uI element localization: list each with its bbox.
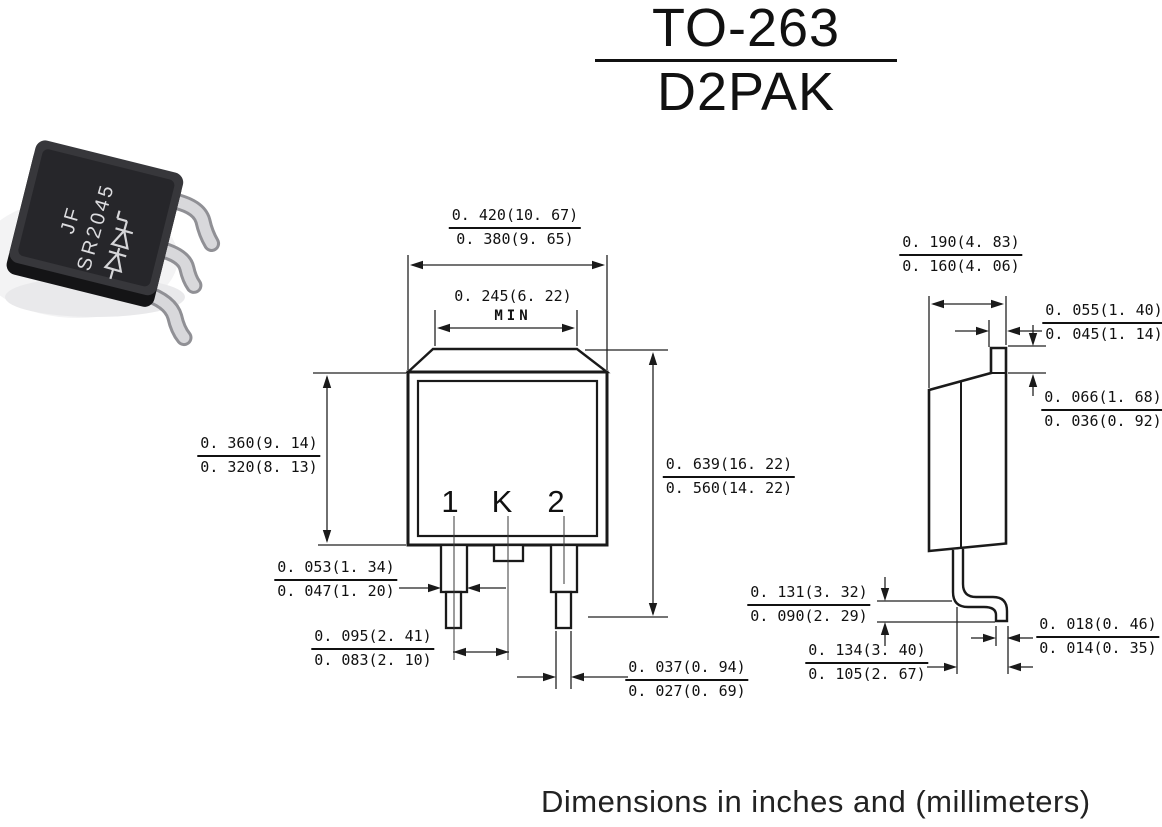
dim-max-value: 0. 639(16. 22) bbox=[663, 455, 795, 478]
dim-max-value: 0. 420(10. 67) bbox=[449, 206, 581, 229]
dim-front-body-height: 0. 360(9. 14) 0. 320(8. 13) bbox=[197, 434, 320, 477]
dim-min-value: 0. 036(0. 92) bbox=[1041, 411, 1162, 432]
dim-max-value: 0. 018(0. 46) bbox=[1036, 615, 1159, 638]
side-body-outline bbox=[929, 348, 1006, 551]
dim-max-value: 0. 095(2. 41) bbox=[311, 627, 434, 650]
dim-min-value: 0. 083(2. 10) bbox=[311, 650, 434, 671]
side-lead-bend bbox=[953, 549, 1007, 621]
package-name-secondary: D2PAK bbox=[595, 64, 897, 120]
front-lead2-lower bbox=[556, 592, 571, 628]
dim-max-value: 0. 037(0. 94) bbox=[625, 658, 748, 681]
dim-side-tab-height: 0. 066(1. 68) 0. 036(0. 92) bbox=[1041, 388, 1162, 431]
dim-min-value: 0. 027(0. 69) bbox=[625, 681, 748, 702]
dim-min-value: 0. 380(9. 65) bbox=[453, 229, 576, 250]
dim-max-value: 0. 360(9. 14) bbox=[197, 434, 320, 457]
dim-front-lead-width-upper: 0. 053(1. 34) 0. 047(1. 20) bbox=[274, 558, 397, 601]
units-caption: Dimensions in inches and (millimeters) bbox=[541, 784, 1091, 820]
dim-value: 0. 245(6. 22) bbox=[454, 287, 571, 307]
datasheet-package-drawing: JF SR2045 bbox=[0, 0, 1162, 827]
package-name-primary: TO-263 bbox=[595, 0, 897, 56]
package-photo: JF SR2045 bbox=[0, 138, 226, 338]
dim-max-value: 0. 066(1. 68) bbox=[1041, 388, 1162, 411]
dim-max-value: 0. 055(1. 40) bbox=[1042, 301, 1162, 324]
dim-min-value: 0. 320(8. 13) bbox=[197, 457, 320, 478]
pin-label-1: 1 bbox=[441, 484, 458, 520]
dim-min-value: 0. 047(1. 20) bbox=[274, 581, 397, 602]
dim-min-value: 0. 160(4. 06) bbox=[899, 256, 1022, 277]
dim-max-value: 0. 190(4. 83) bbox=[899, 233, 1022, 256]
dim-min-value: 0. 105(2. 67) bbox=[805, 664, 928, 685]
dim-max-value: 0. 134(3. 40) bbox=[805, 641, 928, 664]
dim-front-overall-width: 0. 420(10. 67) 0. 380(9. 65) bbox=[449, 206, 581, 249]
dim-front-lead-pitch: 0. 095(2. 41) 0. 083(2. 10) bbox=[311, 627, 434, 670]
pin-label-k: K bbox=[492, 484, 513, 520]
side-view-drawing bbox=[877, 296, 1046, 674]
dim-side-lead-height: 0. 131(3. 32) 0. 090(2. 29) bbox=[747, 583, 870, 626]
dim-max-value: 0. 131(3. 32) bbox=[747, 583, 870, 606]
pin-label-2: 2 bbox=[547, 484, 564, 520]
dim-min-value: 0. 560(14. 22) bbox=[663, 478, 795, 499]
dim-side-foot-length: 0. 134(3. 40) 0. 105(2. 67) bbox=[805, 641, 928, 684]
dim-min-value: 0. 014(0. 35) bbox=[1036, 638, 1159, 659]
front-top-bevel bbox=[408, 349, 607, 372]
dim-side-body-thickness: 0. 190(4. 83) 0. 160(4. 06) bbox=[899, 233, 1022, 276]
dim-front-overall-height: 0. 639(16. 22) 0. 560(14. 22) bbox=[663, 455, 795, 498]
dim-min-value: 0. 045(1. 14) bbox=[1042, 324, 1162, 345]
title-block: TO-263 D2PAK bbox=[595, 0, 897, 120]
dim-side-lead-thickness: 0. 018(0. 46) 0. 014(0. 35) bbox=[1036, 615, 1159, 658]
dim-max-value: 0. 053(1. 34) bbox=[274, 558, 397, 581]
dim-front-tab-width-min: 0. 245(6. 22) MIN bbox=[454, 287, 571, 325]
dim-side-tab-width: 0. 055(1. 40) 0. 045(1. 14) bbox=[1042, 301, 1162, 344]
dim-min-value: 0. 090(2. 29) bbox=[747, 606, 870, 627]
dim-front-lead-width-lower: 0. 037(0. 94) 0. 027(0. 69) bbox=[625, 658, 748, 701]
dim-qualifier: MIN bbox=[494, 307, 531, 325]
drawing-canvas: JF SR2045 bbox=[0, 0, 1162, 827]
